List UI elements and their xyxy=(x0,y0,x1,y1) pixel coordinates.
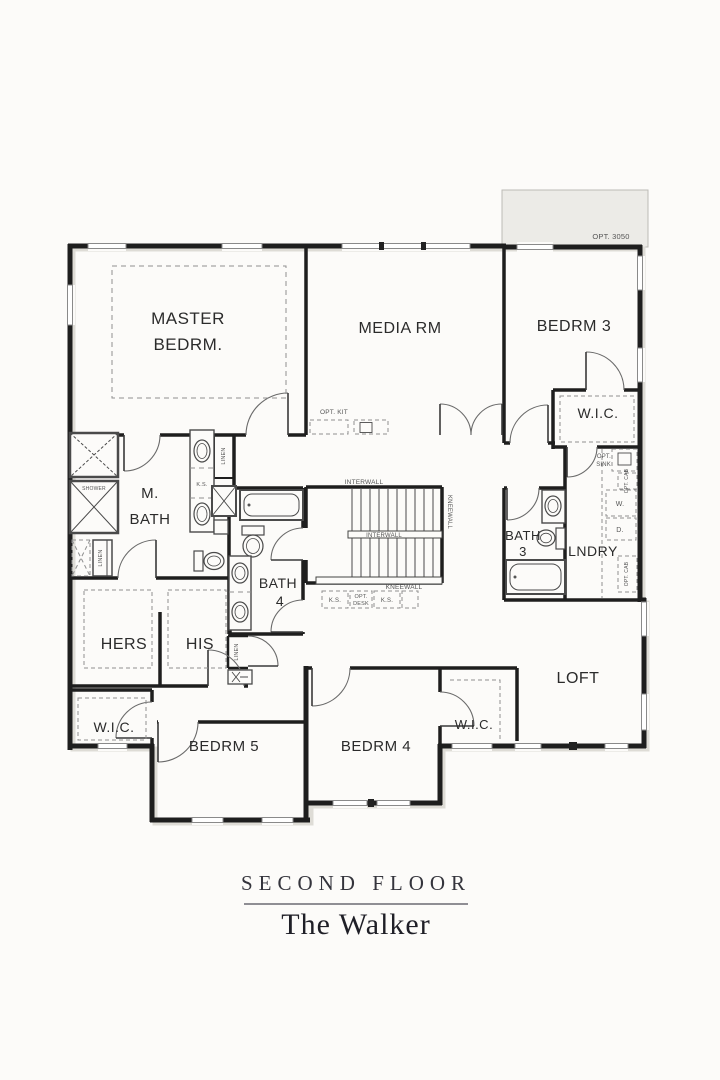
room-label-his-closet: HIS xyxy=(186,636,214,653)
bedroom-3-wic-door xyxy=(586,352,624,390)
opt-sink-label-1: OPT. xyxy=(597,454,611,460)
opt-sink-label-2: SINK xyxy=(596,462,611,468)
wic4-shelving xyxy=(450,680,500,742)
linen-master-closet: LINEN xyxy=(221,447,227,464)
master-bath-closet-door xyxy=(118,540,156,578)
plan-name: The Walker xyxy=(281,908,430,941)
hall-chase-box xyxy=(228,670,252,684)
washer-label: W. xyxy=(616,501,625,508)
room-label-bath-3-2: 3 xyxy=(519,544,527,559)
under-stair-optionals: K.S. OPT. DESK K.S. xyxy=(322,591,418,608)
linen-master-label: LINEN xyxy=(221,447,227,464)
room-label-bath-3-1: BATH xyxy=(505,528,541,543)
room-label-bedroom-3: BEDRM 3 xyxy=(537,318,612,335)
master-entry-door xyxy=(246,393,288,435)
ks-right-label: K.S. xyxy=(381,598,393,604)
master-tray-ceiling xyxy=(112,266,286,398)
dryer-label: D. xyxy=(616,527,623,534)
hers-shelving xyxy=(84,590,152,668)
room-label-bedroom-4: BEDRM 4 xyxy=(341,738,411,755)
kneewall-bottom-label: KNEEWALL xyxy=(386,584,423,591)
room-label-hers-closet: HERS xyxy=(101,636,147,653)
bath-4-vanity xyxy=(229,556,251,630)
his-shelving xyxy=(168,590,226,668)
linen-hall-label: LINEN xyxy=(234,643,240,660)
room-label-master-bedroom-1: MASTER xyxy=(151,309,225,328)
room-label-loft: LOFT xyxy=(557,670,600,687)
ks-left-label: K.S. xyxy=(329,598,341,604)
room-label-laundry: LNDRY xyxy=(568,543,618,559)
bath-3-vanity xyxy=(542,490,565,523)
linen-left-closet: LINEN xyxy=(93,540,112,576)
bedroom-3-door xyxy=(510,405,548,443)
opt-desk-label-2: DESK xyxy=(353,601,369,607)
master-bath-door xyxy=(124,435,160,471)
laundry-optionals: OPT. SINK OPT. CAB W. D. OPT. CAB xyxy=(596,449,637,598)
room-label-master-bedroom-2: BEDRM. xyxy=(153,335,222,354)
interwall-mid-label: INTERWALL xyxy=(366,533,402,539)
bedroom-4-door xyxy=(312,668,350,706)
floor-plan-page: OPT. 3050 xyxy=(0,0,720,1080)
linen-left-label: LINEN xyxy=(98,549,104,566)
room-label-media-room: MEDIA RM xyxy=(358,320,441,337)
room-label-master-bath-2: BATH xyxy=(130,511,171,528)
opt-cab-upper-label: OPT. CAB xyxy=(624,468,630,493)
master-bath-shower-2 xyxy=(212,486,236,516)
room-label-master-bath-1: M. xyxy=(141,485,159,502)
bath-3-toilet xyxy=(537,528,565,549)
room-label-bath-4-1: BATH xyxy=(259,575,297,591)
title-block: SECOND FLOOR The Walker xyxy=(241,871,471,941)
master-vanity: K.S. xyxy=(190,430,214,532)
room-label-bedroom-4-wic: W.I.C. xyxy=(455,717,493,732)
optional-extension-3050: OPT. 3050 xyxy=(502,190,648,247)
master-wc-toilet xyxy=(194,551,224,571)
interwall-top-label: INTERWALL xyxy=(345,479,384,486)
opt-desk-label-1: OPT. xyxy=(354,594,367,600)
shower-label: SHOWER xyxy=(82,486,106,492)
kneewall-right-label: KNEEWALL xyxy=(446,495,452,530)
small-cabinet xyxy=(214,520,228,534)
master-shower: SHOWER xyxy=(70,481,118,533)
floor-title: SECOND FLOOR xyxy=(241,871,471,895)
opt-kit-label: OPT. KIT xyxy=(320,409,348,416)
room-label-bedroom-3-wic: W.I.C. xyxy=(577,405,618,421)
linen-hall-door xyxy=(248,636,278,666)
opt-cab-lower-label: OPT. CAB xyxy=(624,561,630,586)
room-label-bath-4-2: 4 xyxy=(276,593,284,609)
room-label-bedroom-5: BEDRM 5 xyxy=(189,738,259,755)
bath-3-tub xyxy=(506,560,565,594)
room-label-bedroom-5-wic: W.I.C. xyxy=(93,719,134,735)
bath-4-tub xyxy=(240,490,303,520)
attic-chase xyxy=(70,433,118,477)
ks-master-vanity-label: K.S. xyxy=(196,482,207,488)
stair-bottom-kneewall xyxy=(316,577,442,584)
bath-4-toilet xyxy=(242,526,264,557)
floor-plan-drawing: OPT. 3050 xyxy=(0,0,720,1080)
opt-3050-label: OPT. 3050 xyxy=(592,232,629,241)
opt-kitchenette: OPT. KIT xyxy=(310,409,388,434)
